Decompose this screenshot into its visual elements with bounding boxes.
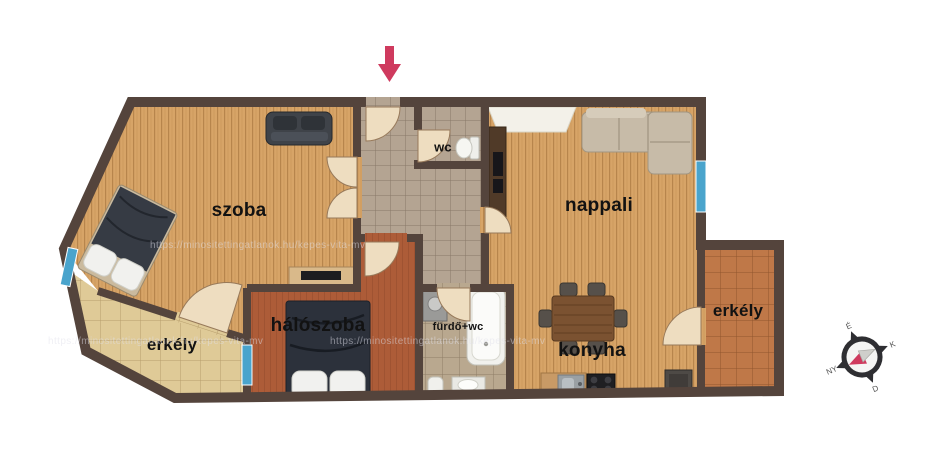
floor-plan-drawing: É K D NY	[0, 0, 929, 450]
szoba-sofa	[266, 112, 332, 145]
label-nappali: nappali	[565, 195, 633, 217]
label-erkely-right: erkély	[713, 301, 763, 321]
label-furdo: fürdő+wc	[433, 321, 484, 333]
floor-plan-page: É K D NY szoba nappali hálószoba fürdő+w…	[0, 0, 929, 450]
entrance-arrow-icon	[378, 46, 401, 82]
compass-icon: É K D NY	[812, 308, 911, 408]
compass-label-s: D	[871, 383, 880, 394]
label-szoba: szoba	[212, 200, 267, 222]
label-haloszoba: hálószoba	[271, 315, 366, 337]
label-konyha: konyha	[558, 340, 626, 362]
szoba-sideboard-tv	[289, 267, 357, 285]
compass-label-w: NY	[825, 364, 839, 377]
compass-label-e: K	[888, 339, 897, 350]
haloszoba-window	[242, 345, 252, 385]
compass-label-n: É	[845, 321, 853, 331]
label-wc: wc	[434, 140, 452, 155]
nappali-window	[696, 161, 706, 212]
nappali-cabinet	[489, 127, 506, 218]
wc-toilet	[456, 137, 479, 159]
label-erkely-left: erkély	[147, 335, 197, 355]
